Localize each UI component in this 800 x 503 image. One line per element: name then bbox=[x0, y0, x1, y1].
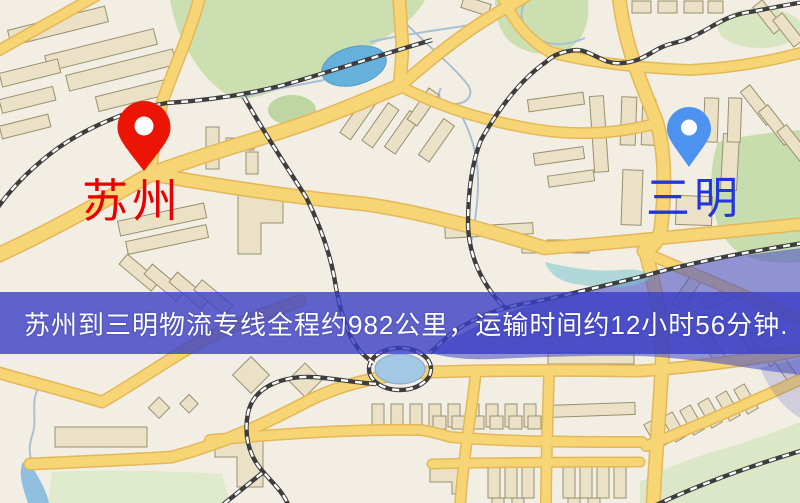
destination-pin-shape bbox=[667, 107, 711, 167]
route-info-banner: 苏州到三明物流专线全程约982公里，运输时间约12小时56分钟. bbox=[0, 292, 800, 354]
map-screenshot: 苏州 三明 苏州到三明物流专线全程约982公里，运输时间约12小时56分钟. bbox=[0, 0, 800, 503]
origin-marker-icon[interactable] bbox=[117, 101, 171, 176]
destination-pin-hole bbox=[681, 120, 697, 136]
destination-label: 三明 bbox=[646, 177, 742, 221]
map-canvas[interactable] bbox=[0, 0, 800, 503]
origin-label: 苏州 bbox=[82, 178, 182, 224]
origin-pin-hole bbox=[135, 117, 154, 136]
route-info-text: 苏州到三明物流专线全程约982公里，运输时间约12小时56分钟. bbox=[0, 305, 788, 342]
destination-marker-icon[interactable] bbox=[667, 106, 711, 173]
origin-pin-shape bbox=[118, 101, 171, 171]
pond-small-icon bbox=[375, 354, 425, 384]
